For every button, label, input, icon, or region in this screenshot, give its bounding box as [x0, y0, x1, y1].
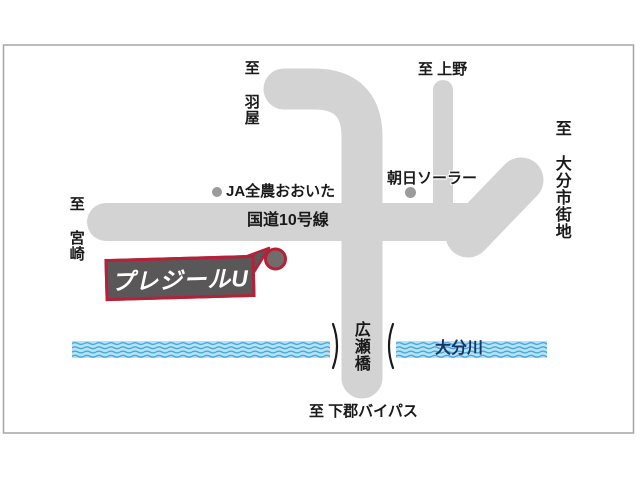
label-ja-zennoh-oita: JA全農おおいた: [226, 184, 335, 200]
label-to-shimogori-bypass: 至 下郡バイパス: [309, 404, 418, 420]
shop-location-marker: [266, 249, 286, 269]
asahi-solar-dot: [405, 187, 416, 198]
label-asahi-solar: 朝日ソーラー: [387, 171, 477, 187]
label-to-ueno: 至 上野: [418, 62, 467, 78]
label-to-oita-downtown: 至 大分市街地: [552, 120, 569, 240]
label-to-haneya: 至 羽屋: [243, 60, 259, 126]
label-to-miyazaki: 至 宮崎: [68, 196, 84, 262]
label-oita-river: 大分川: [435, 341, 483, 358]
access-map: 至 羽屋 至 上野 至 大分市街地 至 宮崎 JA全農おおいた 国道10号線 朝…: [0, 0, 640, 480]
shop-name: プレジールU: [111, 259, 250, 297]
ja-zennoh-dot: [212, 187, 222, 197]
label-route10: 国道10号線: [247, 213, 329, 230]
shop-callout: プレジールU: [104, 255, 255, 301]
label-hirose-bridge: 広瀬橋: [351, 321, 368, 372]
